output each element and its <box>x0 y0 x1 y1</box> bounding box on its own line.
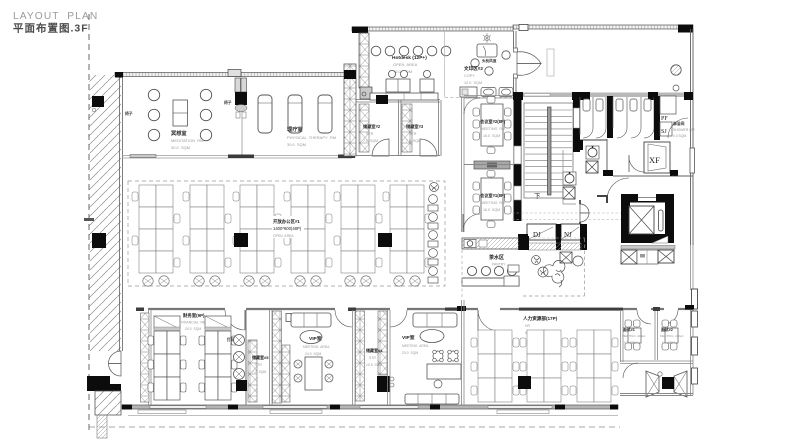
svg-text:24.0 SQM: 24.0 SQM <box>305 352 321 356</box>
svg-text:7.0 SQM: 7.0 SQM <box>406 139 421 143</box>
svg-text:OPEN AREA: OPEN AREA <box>393 62 418 67</box>
svg-text:面试#2: 面试#2 <box>661 327 673 332</box>
svg-text:MEETING AREA: MEETING AREA <box>660 334 683 338</box>
svg-text:FINANCIAL RM: FINANCIAL RM <box>181 321 206 325</box>
svg-text:茶水区: 茶水区 <box>488 254 504 261</box>
svg-text:4.0 SQM: 4.0 SQM <box>673 134 687 138</box>
svg-text:12.0 SQM: 12.0 SQM <box>464 81 482 85</box>
svg-text:STR: STR <box>409 132 417 136</box>
svg-text:MEETING AREA: MEETING AREA <box>402 344 429 348</box>
svg-text:开放办公区#1: 开放办公区#1 <box>273 218 300 225</box>
svg-text:头枕风速: 头枕风速 <box>482 58 497 63</box>
svg-text:人力资源部(17P): 人力资源部(17P) <box>522 315 558 322</box>
svg-text:PHYSICAL THERAPY RM: PHYSICAL THERAPY RM <box>287 135 336 140</box>
svg-text:PANTRY: PANTRY <box>492 263 506 267</box>
svg-text:储藏室#4: 储藏室#4 <box>366 347 383 353</box>
svg-text:30.0 SQM: 30.0 SQM <box>171 145 190 150</box>
svg-text:7.2 SQM: 7.2 SQM <box>252 370 266 374</box>
svg-text:平面布置图.3F: 平面布置图.3F <box>13 22 89 35</box>
svg-text:6.5 SQM: 6.5 SQM <box>624 341 637 345</box>
svg-text:MEDITATION RM: MEDITATION RM <box>171 138 204 143</box>
svg-text:6.5 SQM: 6.5 SQM <box>662 341 675 345</box>
svg-text:STR: STR <box>255 363 262 367</box>
svg-text:PF: PF <box>661 116 668 122</box>
svg-text:文印区#2: 文印区#2 <box>464 65 483 72</box>
svg-text:16.5 SQM: 16.5 SQM <box>483 208 500 212</box>
svg-text:Hotdesk (12P+): Hotdesk (12P+) <box>392 55 427 61</box>
svg-text:VIP室: VIP室 <box>402 334 415 341</box>
svg-text:30.0 SQM: 30.0 SQM <box>287 142 306 147</box>
svg-text:HR: HR <box>525 324 530 328</box>
svg-text:23.0 SQM: 23.0 SQM <box>402 351 418 355</box>
svg-text:STR: STR <box>366 132 374 136</box>
svg-text:SHOWER RM: SHOWER RM <box>673 128 695 132</box>
svg-text:储藏室#3: 储藏室#3 <box>405 123 424 130</box>
svg-text:COPY: COPY <box>464 74 475 78</box>
svg-text:椅子: 椅子 <box>125 111 133 116</box>
svg-text:MEETING AREA: MEETING AREA <box>303 345 330 349</box>
svg-text:MEETING AREA: MEETING AREA <box>622 334 645 338</box>
svg-text:7.0 SQM: 7.0 SQM <box>363 139 378 143</box>
svg-text:面试#1: 面试#1 <box>623 327 635 332</box>
svg-text:椅子: 椅子 <box>224 100 232 105</box>
svg-text:MEETING RM: MEETING RM <box>481 201 505 205</box>
svg-text:20.0 SQM: 20.0 SQM <box>185 327 201 331</box>
svg-text:SJ: SJ <box>661 129 667 135</box>
svg-text:VIP室: VIP室 <box>309 335 322 342</box>
svg-text:冥想室: 冥想室 <box>171 129 187 137</box>
svg-text:16.5 SQM: 16.5 SQM <box>483 134 500 138</box>
svg-text:XF: XF <box>649 155 660 165</box>
svg-text:MEETING RM: MEETING RM <box>481 127 505 131</box>
svg-text:财务室(9P): 财务室(9P) <box>182 312 205 319</box>
svg-text:STR: STR <box>369 356 376 360</box>
svg-text:储藏室#2: 储藏室#2 <box>362 123 381 130</box>
svg-text:理疗室: 理疗室 <box>287 125 303 133</box>
svg-text:淋浴间: 淋浴间 <box>673 121 685 126</box>
svg-text:会议室#2(8P): 会议室#2(8P) <box>480 118 506 125</box>
svg-text:OPEN AREA: OPEN AREA <box>273 234 294 238</box>
svg-text:LAYOUT PLAN: LAYOUT PLAN <box>13 11 98 22</box>
svg-text:下: 下 <box>534 192 541 200</box>
svg-text:10.5 SQM: 10.5 SQM <box>366 363 382 367</box>
svg-text:会议室#1(8P): 会议室#1(8P) <box>480 192 506 199</box>
svg-text:1400*600(48P): 1400*600(48P) <box>273 226 302 231</box>
svg-text:储藏室#5: 储藏室#5 <box>252 354 269 360</box>
